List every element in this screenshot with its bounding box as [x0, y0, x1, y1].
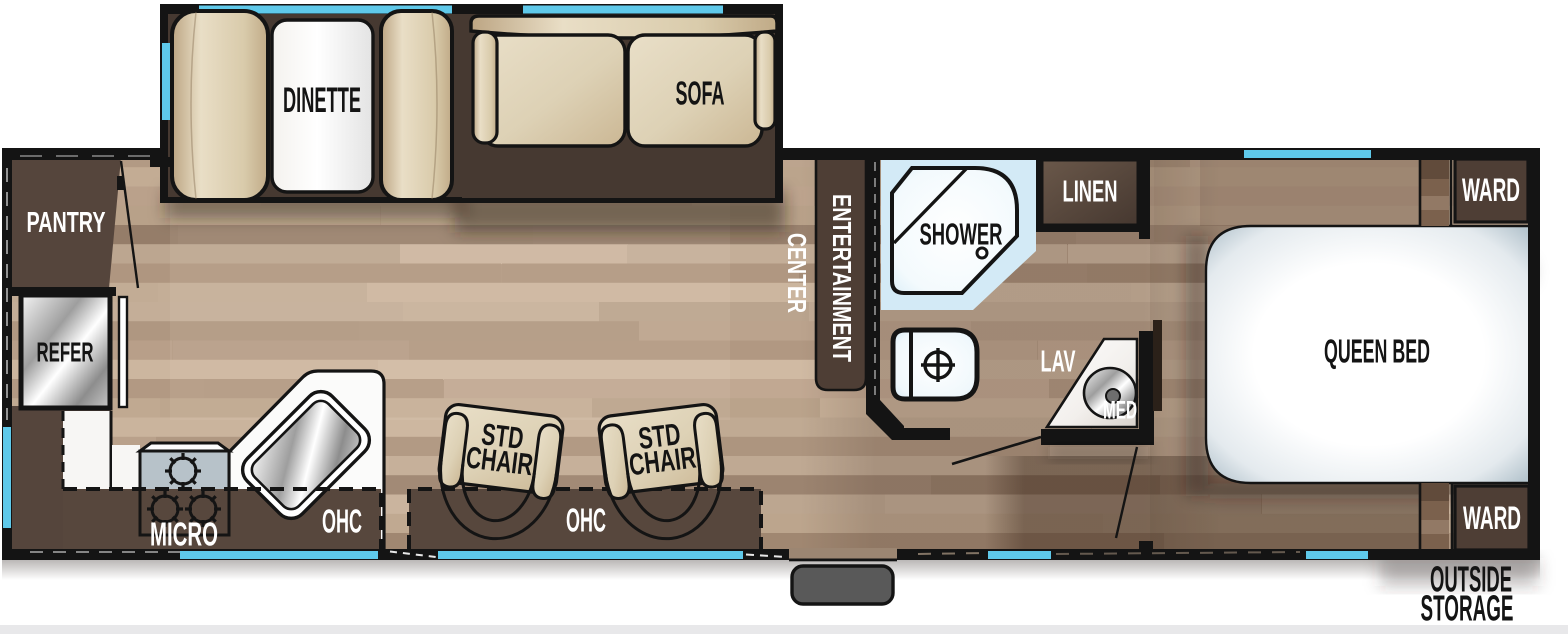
svg-text:STORAGE: STORAGE	[1421, 588, 1514, 629]
svg-text:QUEEN BED: QUEEN BED	[1324, 334, 1430, 371]
svg-text:WARD: WARD	[1462, 172, 1520, 208]
svg-text:MICRO: MICRO	[150, 517, 218, 554]
svg-text:LINEN: LINEN	[1063, 175, 1118, 209]
svg-text:OHC: OHC	[322, 504, 362, 541]
svg-text:OHC: OHC	[566, 503, 606, 540]
svg-text:MED: MED	[1103, 398, 1137, 425]
svg-text:REFER: REFER	[37, 337, 94, 368]
svg-text:CENTER: CENTER	[782, 233, 812, 313]
svg-text:SHOWER: SHOWER	[920, 218, 1003, 252]
svg-text:PANTRY: PANTRY	[27, 207, 106, 239]
svg-text:SOFA: SOFA	[676, 76, 725, 113]
svg-text:LAV: LAV	[1041, 345, 1076, 379]
svg-text:DINETTE: DINETTE	[283, 81, 361, 120]
svg-text:WARD: WARD	[1463, 500, 1521, 536]
svg-text:ENTERTAINMENT: ENTERTAINMENT	[827, 194, 857, 362]
